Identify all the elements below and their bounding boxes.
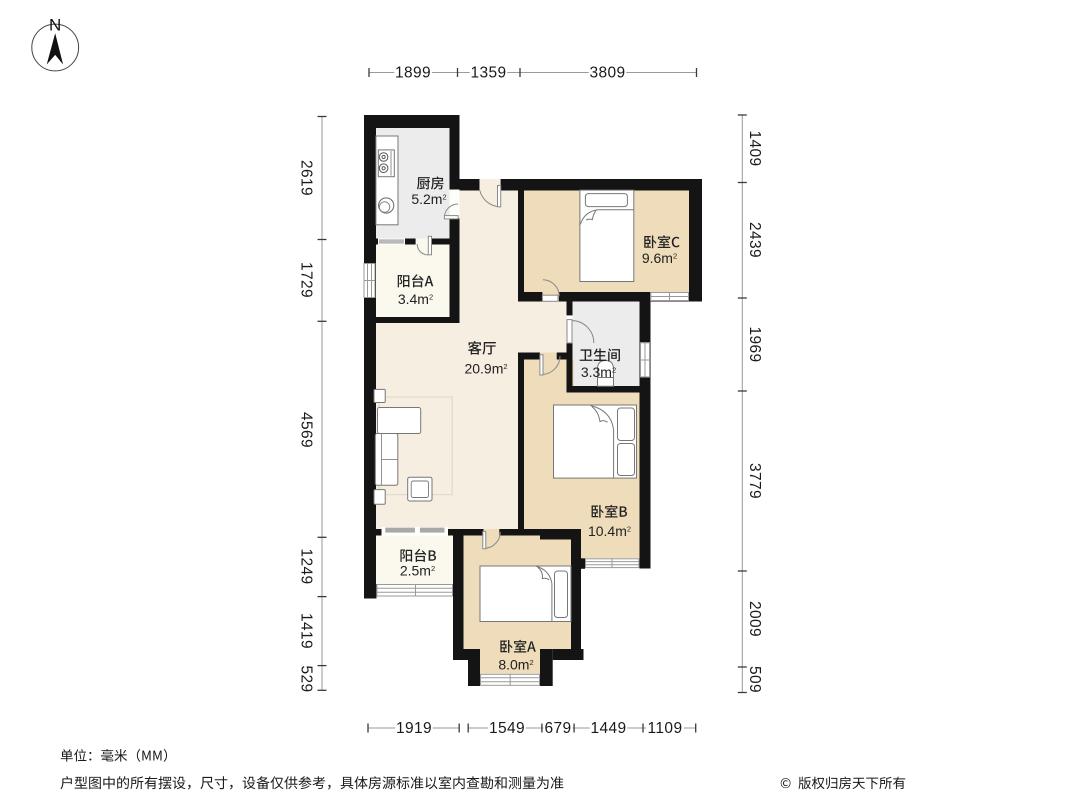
svg-text:2009: 2009 [746,601,763,637]
svg-text:509: 509 [746,666,763,693]
svg-text:N: N [49,16,61,35]
svg-text:1899: 1899 [395,65,431,82]
svg-text:10.4m2: 10.4m2 [588,523,631,539]
svg-text:1419: 1419 [297,613,314,649]
svg-text:2619: 2619 [297,160,314,196]
svg-text:1109: 1109 [648,720,683,737]
svg-text:1919: 1919 [396,720,432,737]
svg-text:20.9m2: 20.9m2 [464,361,507,377]
svg-text:1409: 1409 [746,130,763,166]
svg-text:9.6m2: 9.6m2 [642,250,677,266]
svg-text:1549: 1549 [489,720,525,737]
svg-text:8.0m2: 8.0m2 [498,657,533,673]
svg-text:3.3m2: 3.3m2 [581,364,616,380]
svg-text:2.5m2: 2.5m2 [400,563,435,579]
svg-text:1359: 1359 [470,65,506,82]
svg-text:4569: 4569 [297,412,314,448]
svg-text:1969: 1969 [746,326,763,362]
svg-text:3809: 3809 [589,65,625,82]
svg-text:3.4m2: 3.4m2 [398,291,433,307]
svg-text:2439: 2439 [746,222,763,258]
svg-text:5.2m2: 5.2m2 [411,191,446,207]
svg-text:3779: 3779 [746,463,763,499]
svg-text:679: 679 [544,720,571,737]
svg-text:1449: 1449 [590,720,626,737]
svg-text:1729: 1729 [297,262,314,298]
svg-text:529: 529 [297,665,314,692]
svg-text:1249: 1249 [297,548,314,584]
